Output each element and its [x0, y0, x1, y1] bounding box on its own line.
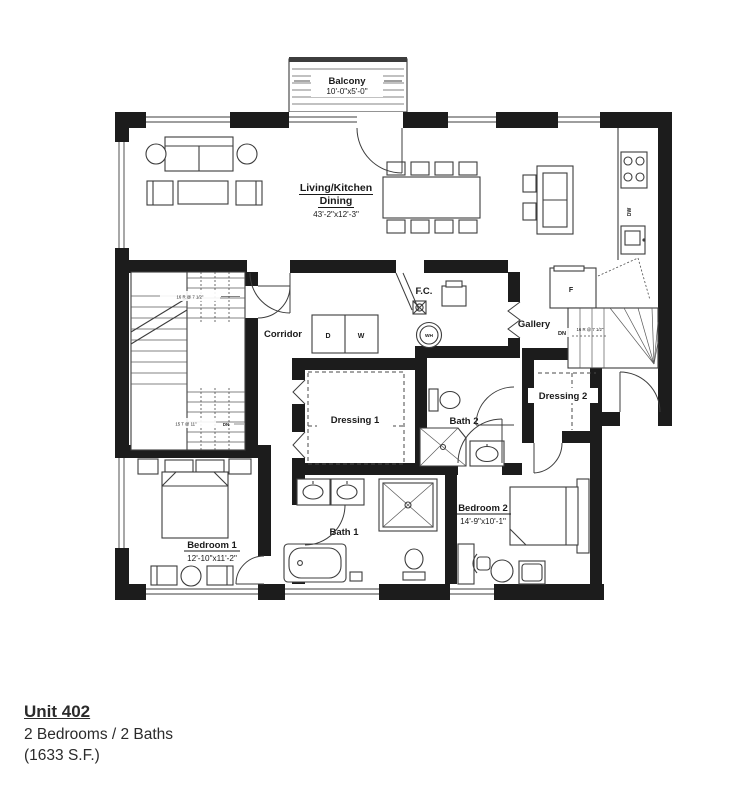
window-bath1-bottom	[285, 584, 379, 600]
desk-bedroom2	[458, 544, 490, 584]
chair-bedroom2	[519, 561, 545, 584]
toilet-bath2	[429, 389, 460, 411]
living-room-furniture	[146, 137, 262, 205]
fridge: F	[550, 258, 650, 308]
balcony: Balcony 10'-0"x5'-0"	[289, 57, 407, 112]
room-label-living-1: Living/Kitchen	[300, 182, 372, 194]
stair-note-bottom: 15 T @ 11"	[175, 422, 197, 427]
entry-landing-door	[620, 372, 660, 412]
bedroom1-door	[236, 556, 264, 584]
round-table-bedroom1	[181, 566, 201, 586]
dim-label-bedroom2: 14'-9"x10'-1"	[460, 517, 506, 526]
floor-plan-page: Balcony 10'-0"x5'-0"	[0, 0, 744, 789]
window-living-left	[115, 142, 129, 248]
room-label-bedroom1: Bedroom 1	[187, 540, 237, 551]
bathtub-bath1	[284, 544, 346, 582]
dressing2-door	[534, 443, 562, 473]
dim-label-balcony: 10'-0"x5'-0"	[326, 87, 367, 96]
bed-bedroom2	[510, 479, 589, 553]
window-bedroom1-bottom	[146, 584, 258, 600]
vanity-bath2	[470, 441, 504, 466]
room-label-dressing1: Dressing 1	[331, 415, 380, 426]
round-table-bedroom2	[491, 560, 513, 582]
dim-label-living: 43'-2"x12'-3"	[313, 210, 359, 219]
stair-note-right: 16 R @ 7 1/2"	[577, 327, 604, 332]
window-living-top	[146, 112, 230, 128]
nightstand-right	[229, 459, 251, 474]
side-table-right	[237, 144, 257, 164]
floor-plan-drawing: Balcony 10'-0"x5'-0"	[0, 0, 744, 789]
dim-label-bedroom1: 12'-10"x11'-2"	[187, 554, 237, 563]
shower-bath1	[379, 479, 437, 531]
stair-dn-label-left: DN	[223, 422, 229, 427]
water-heater: WH	[417, 323, 442, 348]
room-label-corridor: Corridor	[264, 329, 302, 340]
dryer-label: D	[325, 333, 330, 340]
kitchen: DW F	[523, 128, 650, 308]
water-heater-label: WH	[425, 333, 434, 339]
balcony-door-opening	[357, 112, 403, 128]
dressing1-bifold-lower	[293, 432, 305, 458]
common-stairwell: 16 R @ 7 1/2" 15 T @ 11" DN	[131, 272, 245, 450]
cooktop	[621, 152, 647, 188]
bedroom1: Bedroom 1 12'-10"x11'-2"	[138, 459, 251, 586]
room-label-living-2: Dining	[320, 195, 353, 207]
dressing1-bifold-upper	[293, 380, 305, 404]
dishwasher-label: DW	[627, 208, 633, 217]
nightstand-left	[138, 459, 158, 474]
unit-config: 2 Bedrooms / 2 Baths	[24, 725, 173, 746]
coffee-table	[178, 181, 228, 204]
laundry-closet: D W	[312, 315, 378, 353]
unit-number: Unit 402	[24, 702, 173, 722]
kitchen-sink	[621, 226, 646, 254]
dressing1: Dressing 1	[293, 372, 404, 464]
double-vanity-bath1	[297, 479, 364, 505]
room-label-bedroom2: Bedroom 2	[458, 503, 508, 514]
room-label-gallery: Gallery	[518, 319, 551, 330]
corridor-zone: Corridor D W F.C. WH	[264, 273, 520, 353]
bed-bedroom1	[162, 460, 228, 538]
unit-area: (1633 S.F.)	[24, 746, 173, 767]
unit-stair: DN 16 R @ 7 1/2"	[552, 308, 658, 368]
window-bedroom2-bottom	[450, 584, 494, 600]
stair-dn-label-right: DN	[558, 331, 566, 337]
room-label-dressing2: Dressing 2	[539, 391, 588, 402]
bedroom2: Bedroom 2 14'-9"x10'-1"	[455, 479, 589, 584]
washer-label: W	[358, 333, 365, 340]
bath2: Bath 2	[420, 389, 504, 466]
fridge-label: F	[569, 287, 574, 294]
stair-note-top: 16 R @ 7 1/2"	[177, 295, 204, 300]
fan-coil-room: F.C. WH	[396, 273, 466, 348]
side-table-left	[146, 144, 166, 164]
living-room-labels: Living/Kitchen Dining 43'-2"x12'-3"	[299, 182, 373, 219]
window-dining-top	[448, 112, 496, 128]
room-label-balcony: Balcony	[329, 76, 367, 87]
shower-bath2	[420, 428, 466, 466]
title-block: Unit 402 2 Bedrooms / 2 Baths (1633 S.F.…	[24, 702, 173, 767]
window-kitchen-top	[558, 112, 600, 128]
window-bedroom1-left	[115, 458, 129, 548]
fan-coil-symbol	[413, 301, 426, 314]
room-label-bath2: Bath 2	[449, 416, 478, 427]
room-label-fc: F.C.	[416, 286, 433, 297]
bath1: Bath 1	[284, 479, 437, 582]
window-balcony-slider	[289, 112, 357, 128]
toilet-bath1	[403, 549, 425, 580]
bath1-door	[305, 505, 345, 545]
dressing2: Dressing 2	[528, 373, 598, 430]
